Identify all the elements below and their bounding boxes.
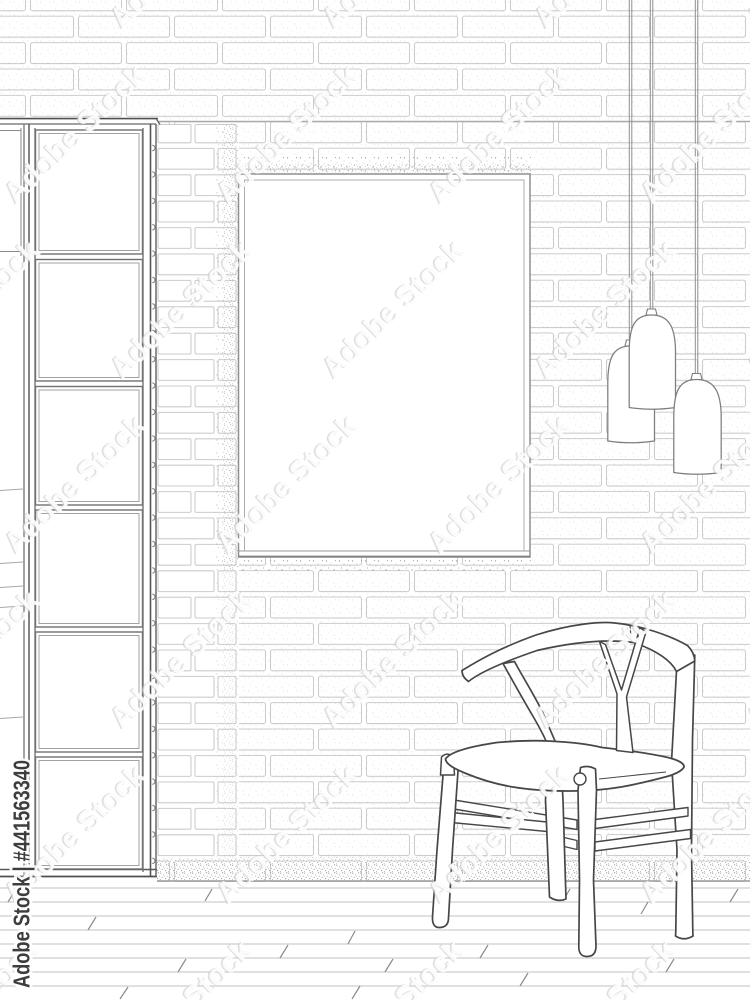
svg-text:Adobe Stock | #441563340: Adobe Stock | #441563340 (9, 760, 35, 988)
